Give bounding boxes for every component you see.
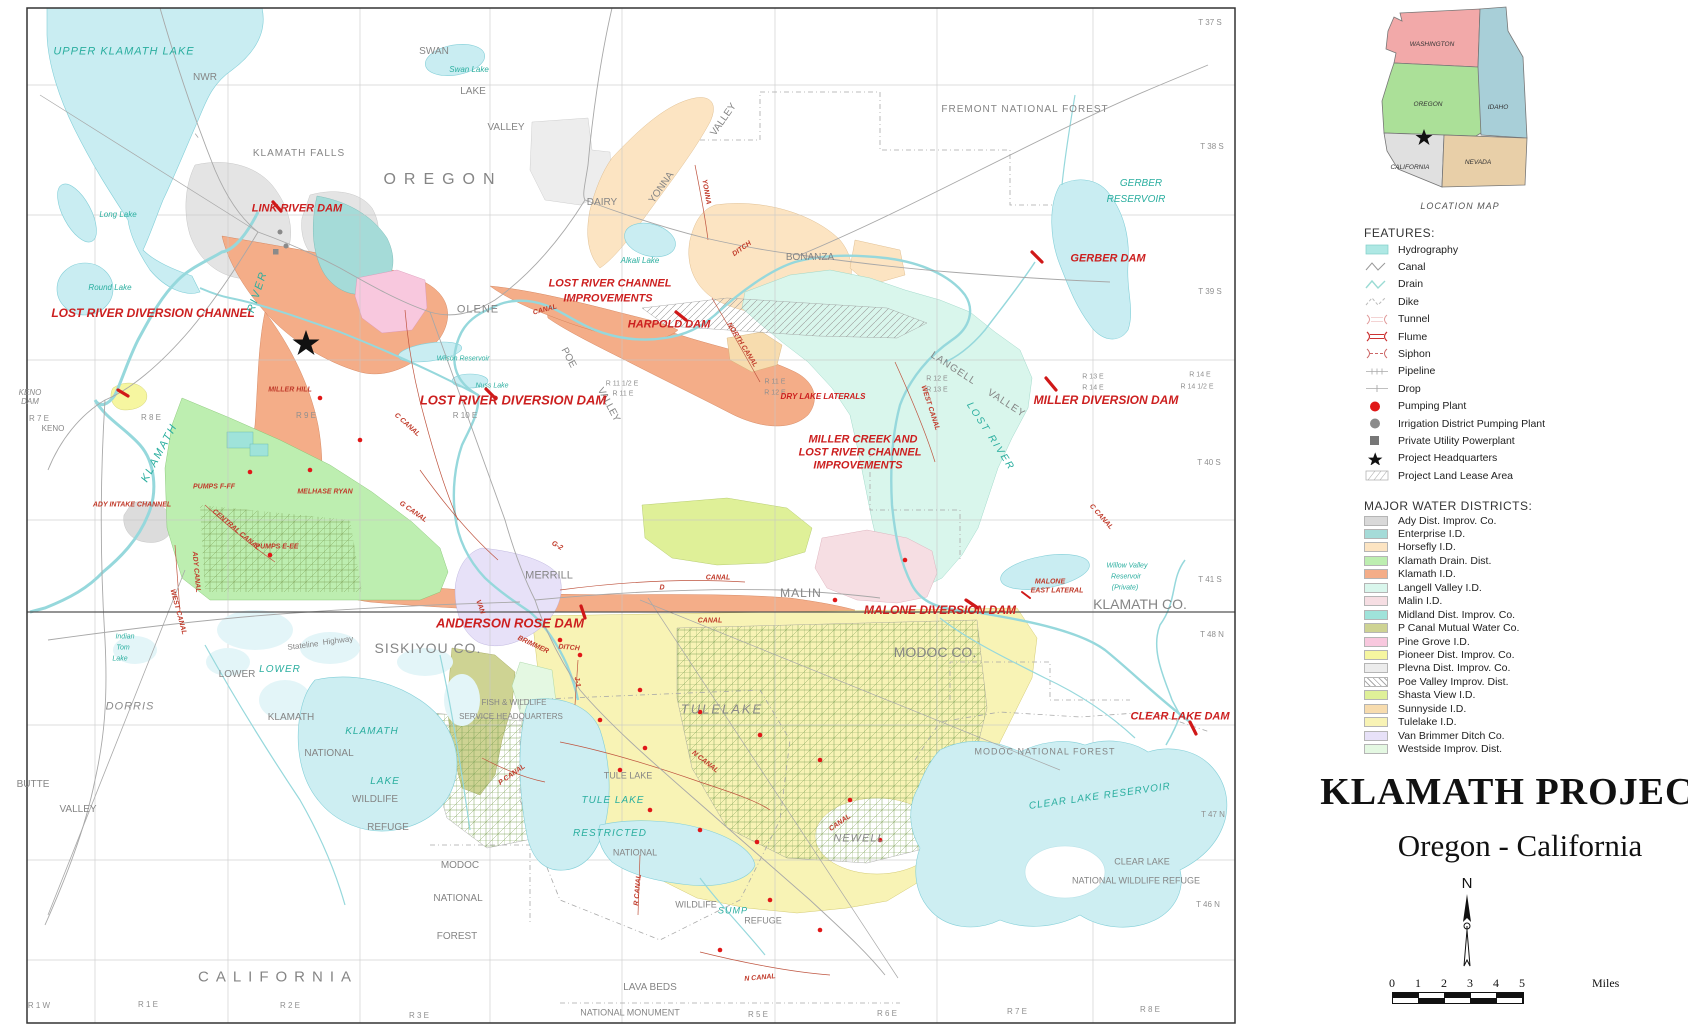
district-legend-label: Tulelake I.D. [1398,716,1457,728]
scale-tick: 1 [1415,976,1421,991]
district-legend-item: Midland Dist. Improv. Co. [1364,608,1515,621]
feature-legend-item: Private Utility Powerplant [1364,434,1515,447]
feature-legend-label: Tunnel [1398,313,1430,325]
district-legend-label: Poe Valley Improv. Dist. [1398,676,1508,688]
district-legend-item: Horsefly I.D. [1364,541,1456,554]
feature-legend-label: Private Utility Powerplant [1398,435,1515,447]
district-legend-item: Plevna Dist. Improv. Co. [1364,662,1510,675]
feature-legend-item: Drain [1364,278,1423,291]
page-title: KLAMATH PROJECT [1290,770,1688,814]
scale-tick: 5 [1519,976,1525,991]
location-state-label: NEVADA [1465,160,1491,167]
district-legend-label: Midland Dist. Improv. Co. [1398,609,1515,621]
scale-bar-cell [1471,998,1497,1003]
feature-legend-item: Canal [1364,260,1425,273]
district-legend-item: Klamath I.D. [1364,568,1456,581]
district-color-swatch [1364,662,1394,675]
north-arrow-label: N [1437,875,1497,892]
district-midland-a [227,432,253,448]
feature-legend-label: Canal [1398,261,1425,273]
state-oregon [1382,63,1483,136]
district-legend-item: Langell Valley I.D. [1364,581,1482,594]
district-color-swatch [1364,689,1394,702]
district-legend-item: Ady Dist. Improv. Co. [1364,514,1496,527]
location-state-label: CALIFORNIA [1390,165,1429,172]
state-washington [1386,9,1480,67]
page-subtitle: Oregon - California [1290,828,1688,864]
feature-legend-item: Tunnel [1364,313,1430,326]
district-legend-item: Poe Valley Improv. Dist. [1364,675,1508,688]
feature-legend-label: Siphon [1398,348,1431,360]
district-color-swatch [1364,581,1394,594]
feature-legend-label: Pipeline [1398,365,1435,377]
district-midland-b [250,444,268,456]
pipeline-symbol [1364,365,1394,378]
district-legend-item: Malin I.D. [1364,595,1442,608]
feature-legend-label: Dike [1398,296,1419,308]
tunnel-symbol [1364,313,1394,326]
feature-legend-item: Siphon [1364,347,1431,360]
hydrography-swatch [1364,243,1394,256]
district-legend-item: Pioneer Dist. Improv. Co. [1364,649,1515,662]
district-legend-item: P Canal Mutual Water Co. [1364,622,1519,635]
location-state-label: IDAHO [1488,105,1509,112]
feature-legend-item: Project Land Lease Area [1364,469,1513,482]
location-map-caption: LOCATION MAP [1350,201,1570,211]
district-legend-item: Pine Grove I.D. [1364,635,1470,648]
scale-tick: 2 [1441,976,1447,991]
district-legend-label: Van Brimmer Ditch Co. [1398,730,1505,742]
scale-bar-cell [1393,998,1419,1003]
headquarters-star [1364,452,1394,465]
round-lake [57,263,113,315]
district-legend-label: Klamath Drain. Dist. [1398,555,1491,567]
district-legend-label: Pine Grove I.D. [1398,636,1470,648]
district-legend-item: Westside Improv. Dist. [1364,743,1502,756]
scale-bar: 012345 Miles [1392,976,1682,1016]
indian-tom-lake [113,636,157,664]
district-color-swatch [1364,649,1394,662]
north-arrow-graphic [1437,892,1497,972]
district-color-swatch [1364,527,1394,540]
feature-legend-label: Hydrography [1398,244,1458,256]
district-legend-label: P Canal Mutual Water Co. [1398,622,1519,634]
feature-legend-item: Flume [1364,330,1427,343]
district-color-swatch [1364,716,1394,729]
district-color-swatch [1364,743,1394,756]
districts-legend-title: MAJOR WATER DISTRICTS: [1364,499,1532,513]
siphon-symbol [1364,347,1394,360]
dike-line [1364,295,1394,308]
district-color-swatch [1364,729,1394,742]
district-color-swatch [1364,675,1394,688]
location-state-label: OREGON [1414,102,1443,109]
district-legend-label: Plevna Dist. Improv. Co. [1398,662,1510,674]
district-legend-label: Westside Improv. Dist. [1398,743,1502,755]
district-color-swatch [1364,514,1394,527]
feature-legend-item: Pumping Plant [1364,400,1466,413]
north-arrow-tail [1464,930,1470,966]
district-legend-item: Sunnyside I.D. [1364,702,1466,715]
scale-tick: 0 [1389,976,1395,991]
feature-legend-label: Pumping Plant [1398,400,1466,412]
district-legend-label: Pioneer Dist. Improv. Co. [1398,649,1515,661]
district-legend-label: Langell Valley I.D. [1398,582,1482,594]
drop-symbol [1364,382,1394,395]
feature-legend-item: Project Headquarters [1364,452,1497,465]
north-arrow-head [1463,894,1471,922]
canal-line [1364,260,1394,273]
feature-legend-label: Project Headquarters [1398,452,1497,464]
district-color-swatch [1364,568,1394,581]
north-arrow: N [1437,875,1497,977]
features-legend-title: FEATURES: [1364,226,1435,240]
district-color-swatch [1364,702,1394,715]
drain-line [1364,278,1394,291]
district-color-swatch [1364,595,1394,608]
right-panel: WASHINGTONOREGONIDAHOCALIFORNIANEVADA LO… [1350,0,1688,1036]
feature-legend-item: Pipeline [1364,365,1435,378]
feature-legend-item: Dike [1364,295,1419,308]
feature-legend-label: Flume [1398,331,1427,343]
state-idaho [1478,7,1527,138]
feature-legend-label: Project Land Lease Area [1398,470,1513,482]
feature-legend-item: Irrigation District Pumping Plant [1364,417,1545,430]
district-pumping-plant-dot [1364,417,1394,430]
lease-swatch [1364,469,1394,482]
district-color-swatch [1364,622,1394,635]
district-legend-item: Klamath Drain. Dist. [1364,554,1491,567]
powerplant-square [1364,434,1394,447]
district-legend-label: Ady Dist. Improv. Co. [1398,515,1496,527]
district-legend-item: Tulelake I.D. [1364,716,1457,729]
scale-bar-cell [1445,998,1471,1003]
district-color-swatch [1364,635,1394,648]
scale-tick: 3 [1467,976,1473,991]
district-legend-label: Klamath I.D. [1398,568,1456,580]
district-legend-label: Horsefly I.D. [1398,541,1456,553]
clear-lake-island [1025,846,1105,898]
district-legend-label: Shasta View I.D. [1398,689,1475,701]
district-color-swatch [1364,541,1394,554]
district-color-swatch [1364,608,1394,621]
private-powerplant-marker [273,249,279,255]
tule-lake [520,699,609,870]
feature-legend-item: Drop [1364,382,1421,395]
feature-legend-label: Drop [1398,383,1421,395]
district-legend-label: Sunnyside I.D. [1398,703,1466,715]
district-legend-label: Enterprise I.D. [1398,528,1465,540]
location-map-inset: WASHINGTONOREGONIDAHOCALIFORNIANEVADA [1370,5,1550,200]
scale-tick: 4 [1493,976,1499,991]
scale-bar-cell [1419,998,1445,1003]
pumping-plant-dot [1364,400,1394,413]
feature-legend-label: Irrigation District Pumping Plant [1398,418,1545,430]
feature-legend-item: Hydrography [1364,243,1458,256]
klamath-project-map-page: UPPER KLAMATH LAKENWRKLAMATH FALLSOREGON… [0,0,1688,1036]
district-legend-item: Enterprise I.D. [1364,527,1465,540]
flume-symbol [1364,330,1394,343]
district-legend-item: Van Brimmer Ditch Co. [1364,729,1505,742]
district-legend-item: Shasta View I.D. [1364,689,1475,702]
state-california [1384,133,1444,187]
feature-legend-label: Drain [1398,278,1423,290]
district-legend-label: Malin I.D. [1398,595,1442,607]
district-color-swatch [1364,554,1394,567]
location-state-label: WASHINGTON [1410,42,1455,49]
scale-bar-cell [1497,998,1523,1003]
scale-bar-cells [1392,992,1524,1004]
scale-unit: Miles [1592,976,1619,991]
